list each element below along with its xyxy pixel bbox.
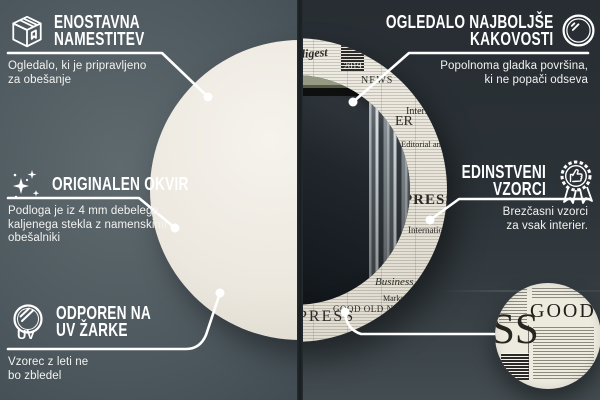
- callout-title: VZORCI: [462, 181, 546, 198]
- mirror-glass-surface: [300, 75, 410, 305]
- callout-best-quality: OGLEDALO NAJBOLJŠE KAKOVOSTI: [333, 12, 597, 49]
- uv-icon-label: UV: [17, 327, 35, 342]
- pattern-word: Internation: [408, 225, 447, 235]
- callout-body: Brezčasni vzorci za vsak interier.: [503, 206, 588, 233]
- reflected-shelf: [300, 75, 372, 96]
- pattern-word: PRESS: [300, 308, 355, 326]
- callout-uv-resistant: UV ODPOREN NA UV ŽARKE: [8, 301, 181, 343]
- callout-title: ORIGINALEN OKVIR: [52, 176, 189, 193]
- newsprint-lines: [533, 327, 594, 379]
- callout-body: Vzorec z leti ne bo zbledel: [8, 356, 88, 383]
- callout-body: Ogledalo, ki je pripravljeno za obešanje: [8, 60, 146, 87]
- pattern-zoom-detail: GOOD SS: [495, 283, 600, 389]
- newsprint-dark-block: [501, 353, 529, 380]
- uv-sun-icon: UV: [8, 301, 48, 343]
- callout-title: KAKOVOSTI: [385, 31, 553, 48]
- detail-word-good: GOOD: [530, 300, 596, 323]
- callout-unique-patterns: EDINSTVENI VZORCI: [435, 157, 597, 205]
- product-infographic: digest 2019 NEWS Internati ER Editorial …: [0, 0, 600, 400]
- newsprint-lines: [532, 288, 594, 298]
- callout-body: Podloga je iz 4 mm debelega kaljenega st…: [8, 205, 167, 246]
- callout-body: Popolnoma gladka površina, ki ne popači …: [440, 60, 588, 87]
- award-badge-icon: [553, 157, 597, 205]
- round-mirror-icon: [560, 12, 597, 49]
- callout-easy-install: ENOSTAVNA NAMESTITEV: [8, 12, 173, 50]
- callout-original-frame: ORIGINALEN OKVIR: [8, 166, 232, 202]
- callout-title: UV ŽARKE: [56, 322, 151, 339]
- detail-word-ss: SS: [495, 305, 539, 354]
- reflected-curtain: [369, 75, 410, 305]
- package-box-icon: [8, 12, 46, 50]
- pattern-word: digest: [300, 45, 328, 62]
- panel-divider: [297, 0, 303, 400]
- sparkles-icon: [8, 166, 44, 202]
- callout-title: NAMESTITEV: [54, 31, 144, 48]
